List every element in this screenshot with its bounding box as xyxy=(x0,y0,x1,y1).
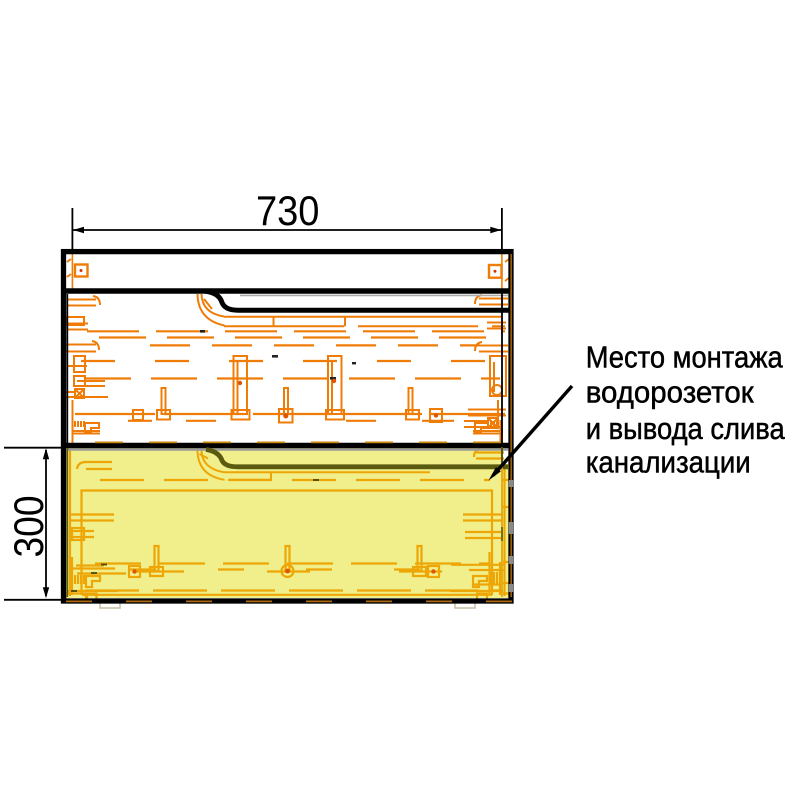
svg-text:Место монтажа: Место монтажа xyxy=(586,340,784,375)
svg-text:канализации: канализации xyxy=(586,445,751,480)
svg-text:730: 730 xyxy=(256,187,320,234)
svg-text:и вывода слива: и вывода слива xyxy=(586,411,786,446)
svg-text:водорозеток: водорозеток xyxy=(586,375,754,410)
svg-text:300: 300 xyxy=(5,496,52,558)
